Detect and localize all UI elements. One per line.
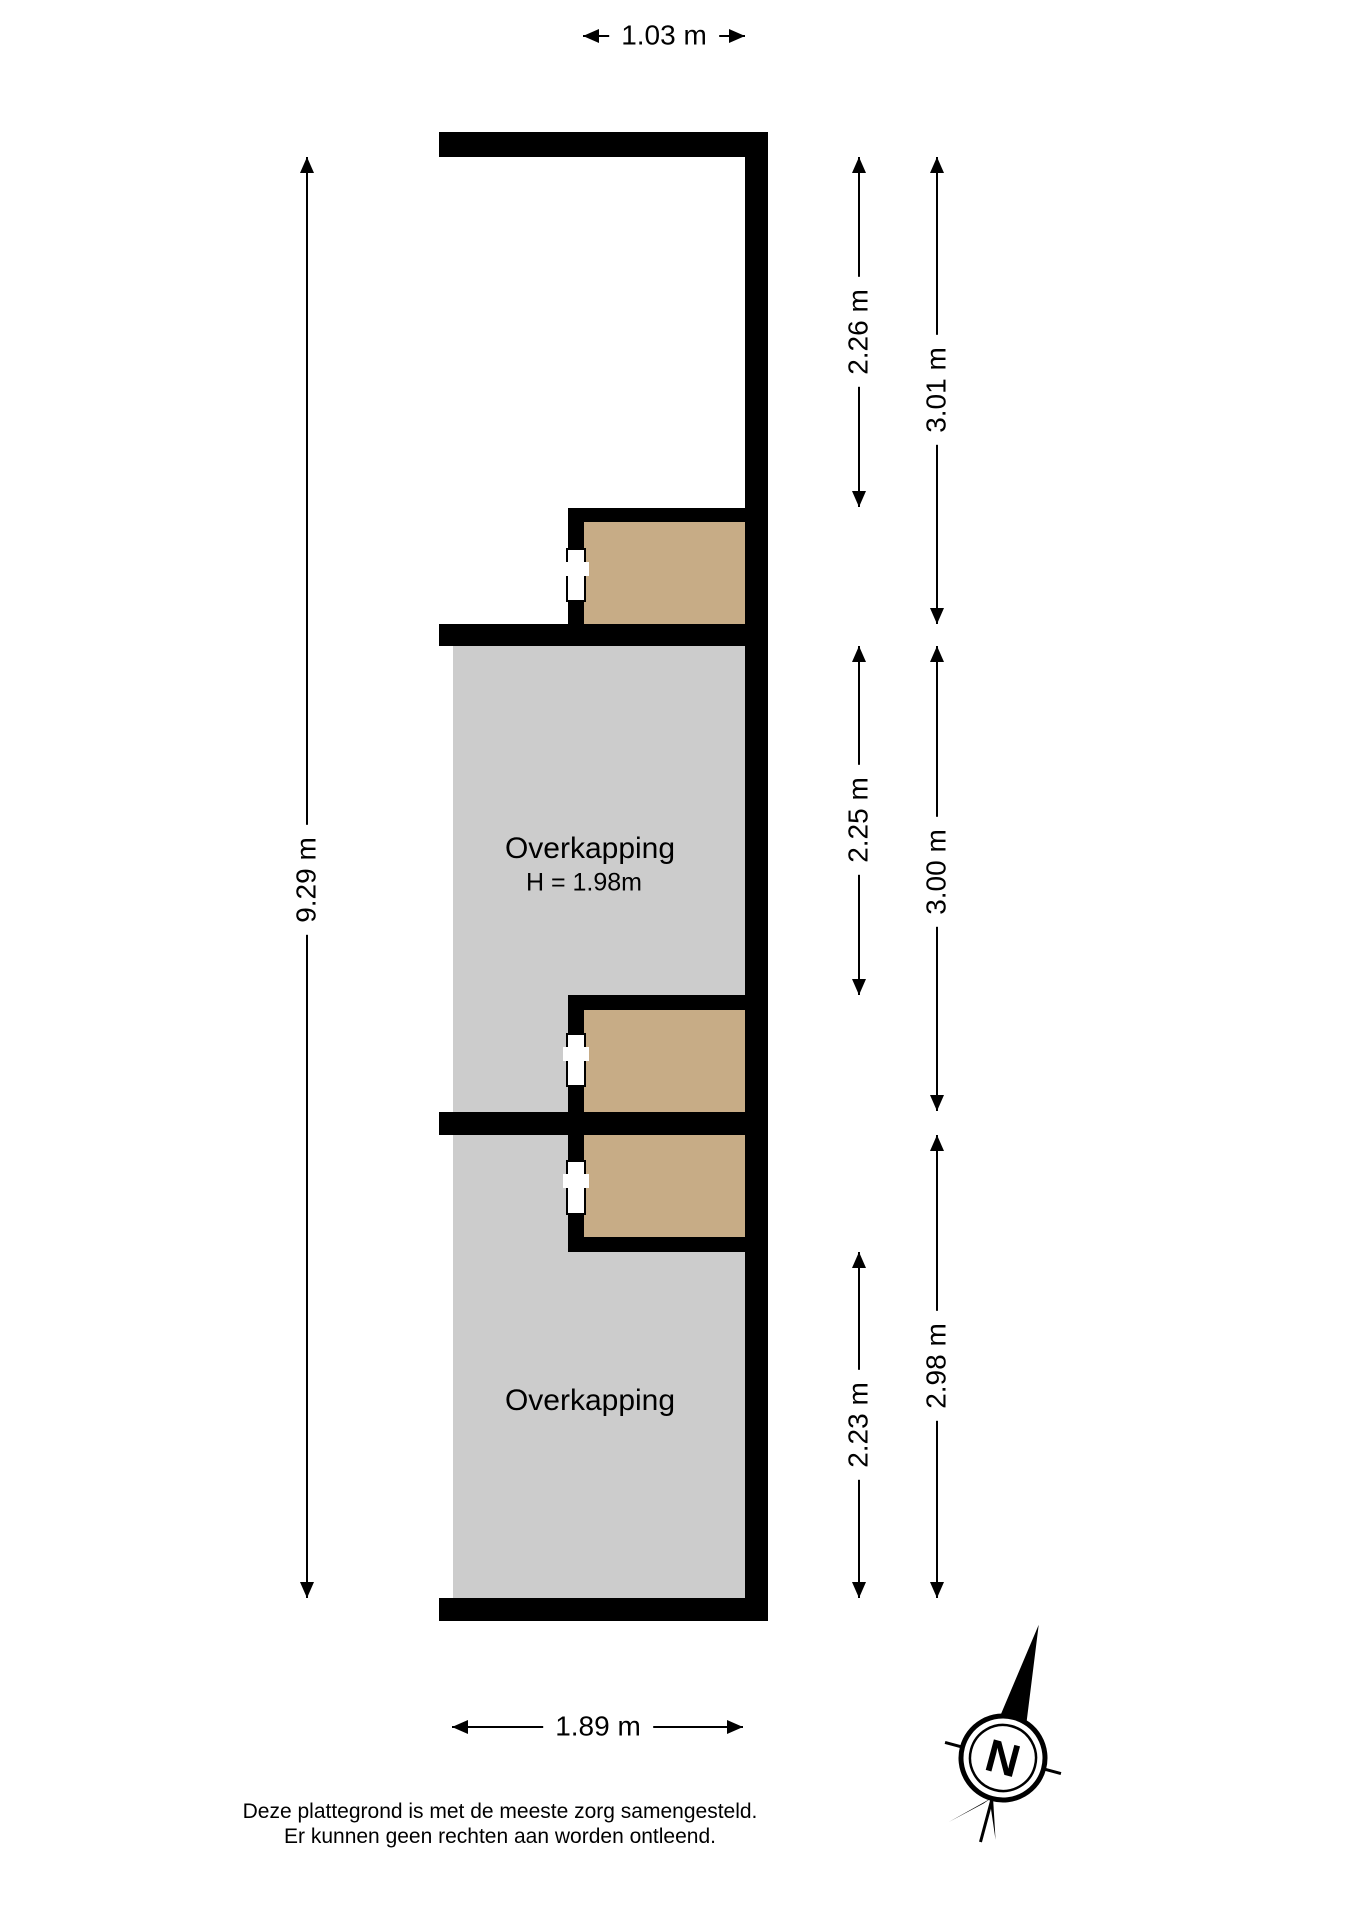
shed-room-3 (584, 1135, 745, 1237)
dim-right-inner-3-label: 2.23 m (842, 1370, 877, 1480)
room-label-overkapping-1: Overkapping (505, 832, 675, 866)
bottom-wall (439, 1598, 768, 1621)
arrow-left-icon (583, 29, 599, 43)
room-height-label-overkapping-1: H = 1.98m (526, 869, 642, 898)
dim-right-inner-2-label: 2.25 m (842, 765, 877, 875)
dim-top-label: 1.03 m (609, 19, 719, 54)
shed-room-1 (584, 522, 745, 624)
shed3-bottom-wall (569, 1237, 745, 1252)
arrow-down-icon (300, 1582, 314, 1598)
middle-wall-1 (439, 624, 768, 646)
disclaimer: Deze plattegrond is met de meeste zorg s… (243, 1799, 758, 1849)
right-wall (745, 132, 768, 1621)
compass-north-needle (999, 1621, 1052, 1726)
compass-icon: N (903, 1608, 1103, 1858)
shed1-top-wall (569, 508, 745, 522)
dim-right-inner-1-label: 2.26 m (842, 277, 877, 387)
floorplan-canvas: Overkapping H = 1.98m Overkapping 1.03 m… (0, 0, 1358, 1920)
shed2-top-wall (569, 995, 745, 1010)
arrow-up-icon (300, 157, 314, 173)
disclaimer-line2: Er kunnen geen rechten aan worden ontlee… (243, 1824, 758, 1849)
room-label-overkapping-2: Overkapping (505, 1384, 675, 1418)
dim-right-outer-1-label: 3.01 m (920, 335, 955, 445)
middle-wall-2 (439, 1112, 768, 1135)
dim-right-outer-3-label: 2.98 m (920, 1311, 955, 1421)
arrow-right-icon (729, 29, 745, 43)
disclaimer-line1: Deze plattegrond is met de meeste zorg s… (243, 1799, 758, 1824)
dim-bottom-label: 1.89 m (543, 1710, 653, 1745)
shed-room-2 (584, 1010, 745, 1112)
dim-left-label: 9.29 m (290, 825, 325, 935)
top-wall (439, 132, 768, 157)
dim-right-outer-2-label: 3.00 m (920, 817, 955, 927)
